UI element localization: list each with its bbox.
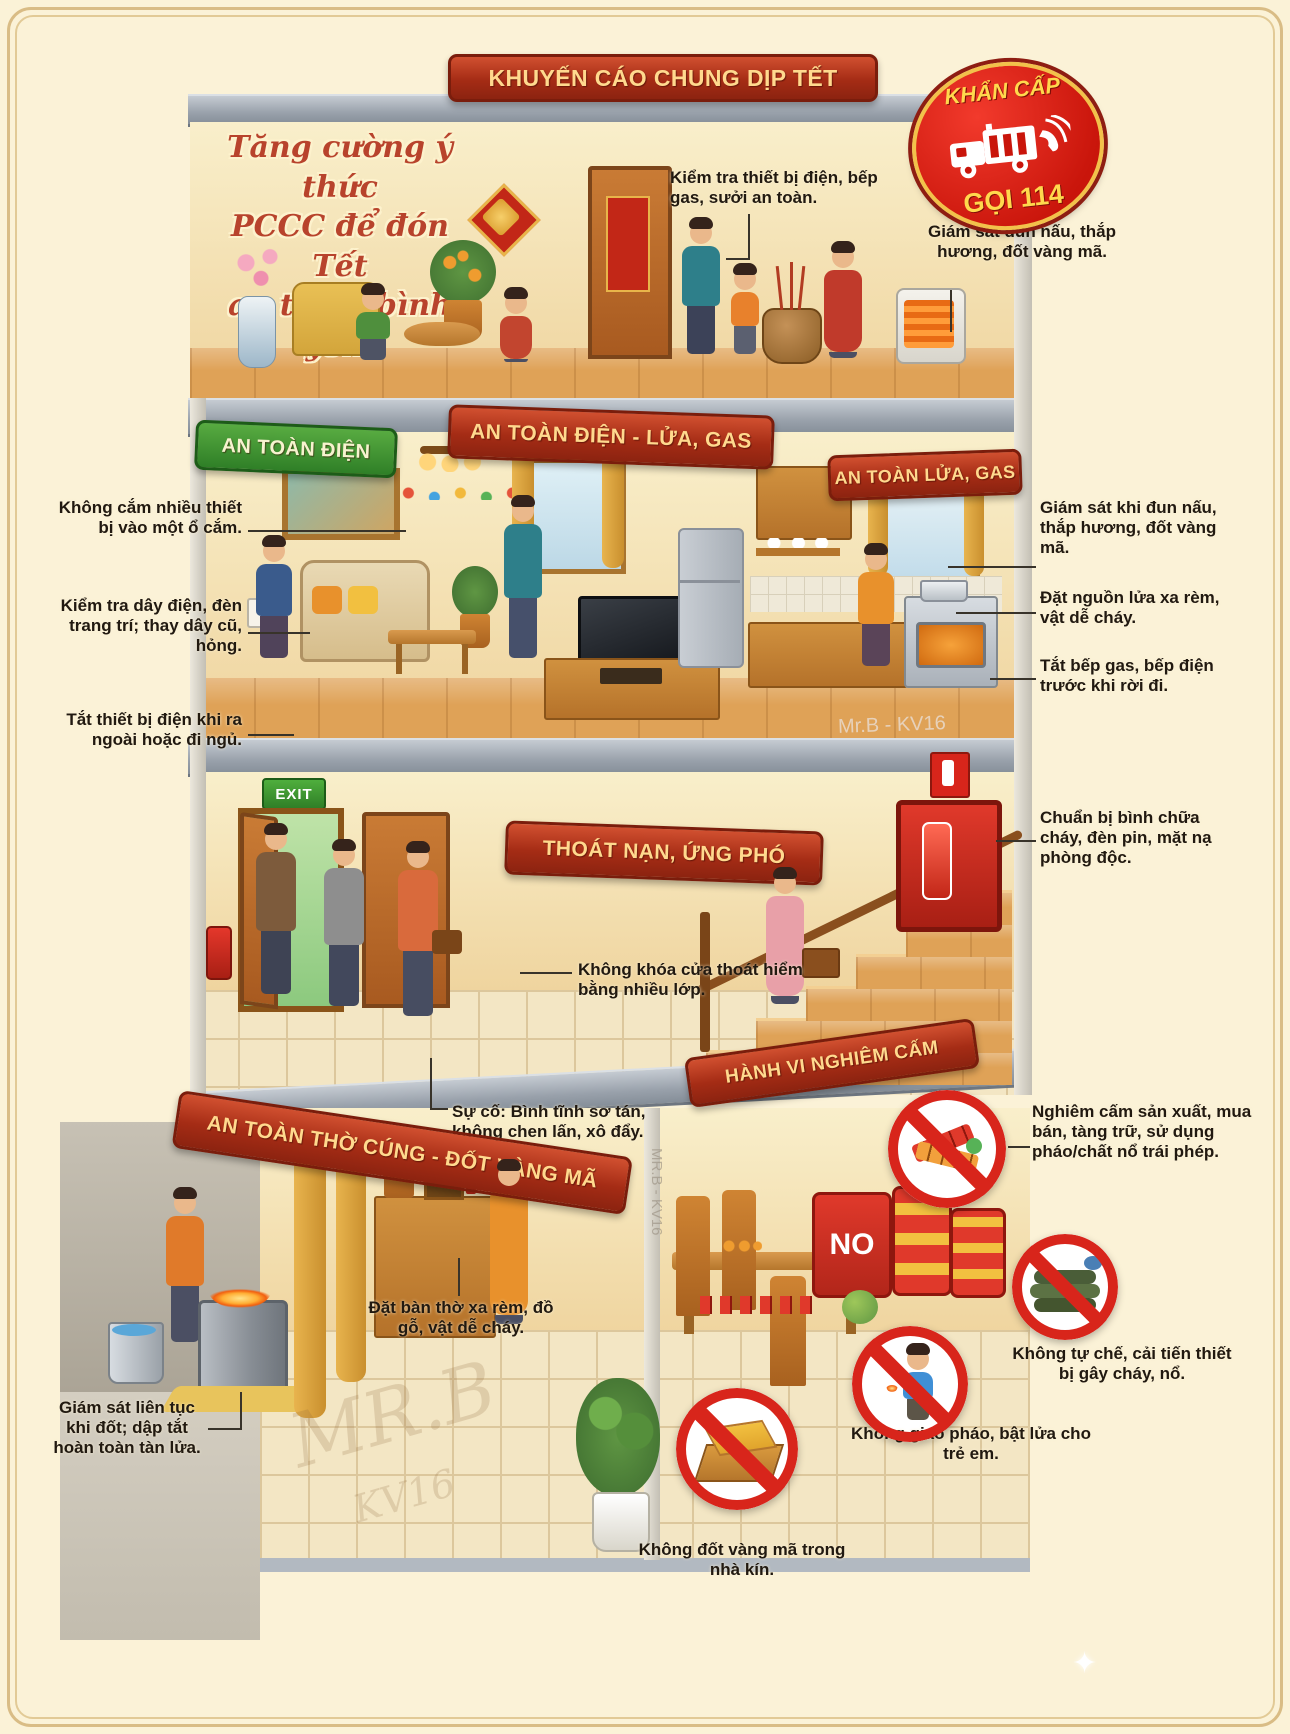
pointer-line: [240, 1392, 242, 1430]
banner-electric-fire-gas: AN TOÀN ĐIỆN - LỬA, GAS: [447, 404, 775, 469]
callout-check-wires: Kiểm tra dây điện, đèn trang trí; thay d…: [42, 596, 242, 656]
handbag: [432, 930, 462, 954]
emergency-badge: KHẨN CẤP GỌI 114: [904, 52, 1113, 239]
blossom-vase: [238, 296, 276, 368]
no-explosives-sign: [1012, 1234, 1118, 1340]
firecracker-barrel: NO: [812, 1192, 892, 1298]
pointer-line: [208, 1428, 242, 1430]
pointer-line: [1008, 1146, 1030, 1148]
burn-barrel: [198, 1300, 288, 1400]
pointer-line: [990, 678, 1036, 680]
fruit-plate: [718, 1240, 762, 1252]
fire-extinguisher-large: [922, 822, 952, 900]
callout-watch-stove: Giám sát khi đun nấu, thắp hương, đốt và…: [1040, 498, 1245, 558]
pointer-line: [956, 612, 1036, 614]
floor2-plant: [452, 566, 498, 618]
no-children-lighter-sign: [852, 1326, 968, 1442]
floor4-plant: [576, 1378, 660, 1496]
pointer-line: [996, 840, 1036, 842]
tv-cabinet-shelf: [600, 668, 662, 684]
callout-flame-away: Đặt nguồn lửa xa rèm, vật dễ cháy.: [1040, 588, 1245, 628]
woman-cooking-figure: [854, 548, 898, 666]
no-fireworks-sign: [888, 1090, 1006, 1208]
pointer-line: [248, 632, 310, 634]
coffee-table-top: [388, 630, 476, 644]
no-indoor-burning-sign: [676, 1388, 798, 1510]
callout-check-devices: Kiểm tra thiết bị điện, bếp gas, sưởi an…: [670, 168, 915, 208]
pail-water: [112, 1324, 156, 1336]
person-sitting-green: [352, 288, 394, 360]
mother-ao-dai-figure: [820, 246, 866, 358]
sofa-cushion-yellow: [348, 586, 378, 614]
evacuee-man-brown: [252, 828, 300, 994]
incense-urn: [762, 308, 822, 364]
sparkle-icon: ✦: [1072, 1646, 1097, 1681]
firecracker-roll-2: [950, 1208, 1006, 1298]
child-figure: [728, 268, 762, 354]
oven-door: [916, 622, 986, 668]
pointer-line: [248, 734, 294, 736]
banner-electric-safety: AN TOÀN ĐIỆN: [194, 420, 398, 479]
altar-curtain-right: [336, 1142, 366, 1382]
callout-supervise-burning: Giám sát liên tục khi đốt; dập tắt hoàn …: [46, 1398, 208, 1458]
stair-step: [806, 986, 1012, 1021]
pointer-line: [520, 972, 572, 974]
pointer-line: [458, 1258, 460, 1296]
callout-off-before-leaving: Tắt bếp gas, bếp điện trước khi rời đi.: [1040, 656, 1245, 696]
altar-curtain-left: [294, 1142, 326, 1418]
pointer-line: [248, 530, 406, 532]
refrigerator-door-line: [678, 580, 740, 583]
string-lights: [398, 486, 528, 500]
stair-step: [856, 954, 1012, 989]
peach-blossom-branch: [228, 238, 288, 300]
callout-no-locked-exit: Không khóa cửa thoát hiểm bằng nhiều lớp…: [578, 960, 803, 1000]
extinguisher-sign-glyph: [942, 760, 954, 786]
briefcase: [802, 948, 840, 978]
incense-stick-2: [790, 262, 793, 310]
exit-sign: EXIT: [262, 778, 326, 810]
man-unplugging-figure: [252, 540, 296, 658]
sofa-cushion-orange: [312, 586, 342, 614]
scattered-firecrackers: [700, 1296, 820, 1314]
tea-table: [404, 322, 480, 346]
pointer-line: [948, 566, 1036, 568]
television: [578, 596, 690, 664]
shelf-bowls: [760, 538, 830, 548]
man-decorating-figure: [500, 500, 546, 658]
pointer-line: [748, 214, 750, 260]
evacuee-man-grey: [320, 844, 368, 1006]
door-couplet: [606, 196, 650, 292]
banner-fire-gas-safety: AN TOÀN LỬA, GAS: [827, 449, 1022, 502]
pointer-line: [430, 1058, 432, 1110]
callout-no-overload: Không cắm nhiều thiết bị vào một ổ cắm.: [42, 498, 242, 538]
coffee-table-leg: [396, 644, 402, 674]
refrigerator: [678, 528, 744, 668]
heater-glow-grille: [904, 300, 954, 348]
cooking-pot: [920, 580, 968, 602]
callout-altar-away: Đặt bàn thờ xa rèm, đồ gỗ, vật dễ cháy.: [366, 1298, 556, 1338]
kumquat-tree: [430, 240, 496, 304]
callout-ban-indoor-burning: Không đốt vàng mã trong nhà kín.: [638, 1540, 846, 1580]
pointer-line: [950, 290, 952, 332]
father-figure: [678, 222, 724, 354]
callout-prepare-kit: Chuẩn bị bình chữa cháy, đèn pin, mặt nạ…: [1040, 808, 1240, 868]
title-banner: KHUYẾN CÁO CHUNG DỊP TẾT: [448, 54, 878, 102]
kitchen-shelf: [756, 548, 840, 556]
person-sitting-red: [496, 292, 536, 362]
pointer-line: [430, 1108, 448, 1110]
fire-safety-infographic-poster: { "header": { "title": "KHUYẾN CÁO CHUNG…: [0, 0, 1290, 1734]
callout-ban-fireworks: Nghiêm cấm sản xuất, mua bán, tàng trữ, …: [1032, 1102, 1260, 1162]
fire-extinguisher-small: [206, 926, 232, 980]
pomelo: [842, 1290, 878, 1324]
callout-ban-homemade: Không tự chế, cải tiến thiết bị gây cháy…: [1006, 1344, 1238, 1384]
pointer-line: [726, 258, 750, 260]
building-right-cut-edge: [1014, 122, 1032, 1095]
callout-turn-off: Tắt thiết bị điện khi ra ngoài hoặc đi n…: [42, 710, 242, 750]
dining-chair: [770, 1276, 806, 1386]
coffee-table-leg: [462, 644, 468, 674]
slogan-line-1: Tăng cường ý thức: [205, 128, 475, 207]
curtain-right: [602, 456, 624, 568]
